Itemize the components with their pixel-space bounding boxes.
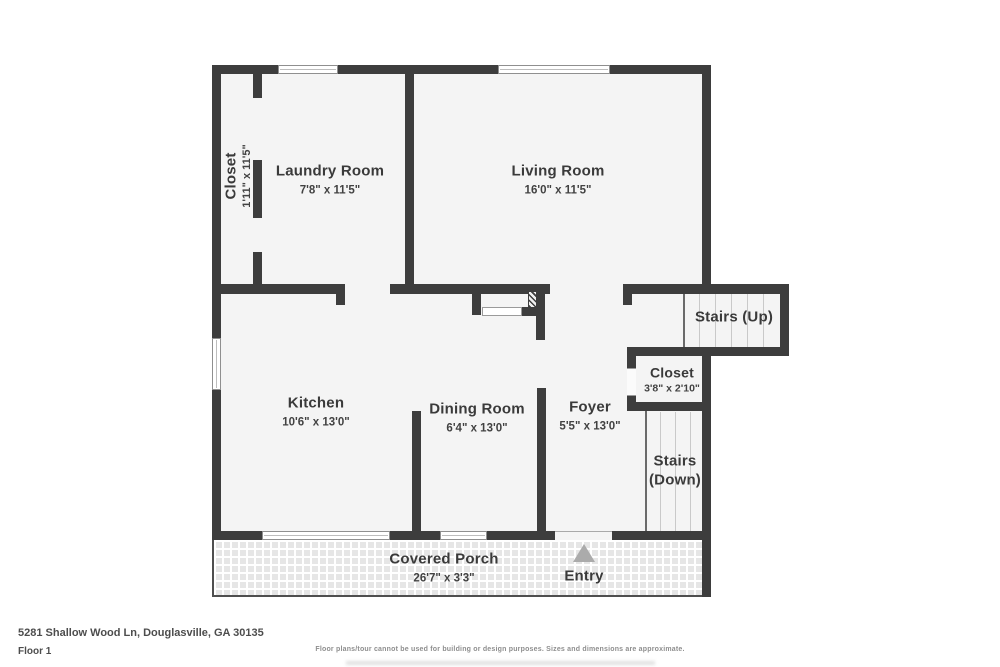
room-dims: 7'8" x 11'5": [276, 183, 384, 197]
footer-artifact: [346, 661, 655, 665]
wall: [253, 65, 262, 98]
room-name: Foyer: [559, 398, 620, 417]
wall: [780, 284, 789, 354]
room-label-living: Living Room 16'0" x 11'5": [511, 162, 604, 197]
room-name: Stairs (Up): [695, 309, 773, 328]
stair-edge: [683, 294, 685, 347]
wall: [212, 284, 345, 294]
wall: [536, 284, 545, 340]
room-name: (Down): [649, 471, 701, 490]
wall: [702, 347, 711, 597]
room-name: Covered Porch: [389, 550, 498, 569]
wall: [623, 294, 632, 305]
window: [212, 338, 221, 390]
room-label-kitchen: Kitchen 10'6" x 13'0": [282, 394, 350, 429]
wall: [405, 65, 414, 294]
window: [498, 65, 610, 74]
wall: [623, 284, 789, 294]
room-name: Entry: [564, 568, 603, 587]
house-floor: [212, 65, 711, 540]
room-name: Closet: [644, 365, 700, 383]
wall: [627, 347, 789, 356]
room-dims: 16'0" x 11'5": [511, 183, 604, 197]
wall: [520, 307, 537, 316]
room-dims: 5'5" x 13'0": [559, 419, 620, 433]
door-opening: [627, 368, 636, 396]
disclaimer-text: Floor plans/tour cannot be used for buil…: [0, 646, 1000, 653]
sliding-door: [482, 307, 522, 316]
room-dims: 10'6" x 13'0": [282, 415, 350, 429]
room-label-porch: Covered Porch 26'7" x 3'3": [389, 550, 498, 585]
room-name: Laundry Room: [276, 162, 384, 181]
wall: [212, 65, 221, 540]
property-address: 5281 Shallow Wood Ln, Douglasville, GA 3…: [18, 627, 264, 639]
wall: [336, 284, 345, 305]
room-name: Dining Room: [429, 400, 525, 419]
entry-arrow-icon: [573, 544, 595, 562]
room-label-entry: Entry: [564, 568, 603, 587]
window: [278, 65, 338, 74]
wall: [253, 160, 262, 218]
window: [440, 531, 487, 540]
wall: [412, 411, 421, 531]
room-dims: 26'7" x 3'3": [389, 571, 498, 585]
room-label-laundry: Laundry Room 7'8" x 11'5": [276, 162, 384, 197]
floor-plan-page: Closet 1'11" x 11'5" Laundry Room 7'8" x…: [0, 0, 1000, 667]
room-dims: 3'8" x 2'10": [644, 382, 700, 395]
room-label-stairs-down: Stairs (Down): [649, 452, 701, 490]
room-dims-closet-left: 1'11" x 11'5": [241, 144, 253, 207]
wall: [627, 347, 636, 368]
room-name: Stairs: [649, 452, 701, 471]
window: [262, 531, 390, 540]
wall: [390, 284, 550, 294]
stair-edge: [645, 411, 647, 531]
wall: [702, 65, 711, 294]
room-label-closet-left: Closet: [223, 152, 240, 199]
room-label-closet-right: Closet 3'8" x 2'10": [644, 365, 700, 396]
room-name: Living Room: [511, 162, 604, 181]
entry-opening: [555, 531, 612, 540]
wall: [627, 402, 711, 411]
room-dims: 6'4" x 13'0": [429, 421, 525, 435]
wall: [472, 294, 481, 315]
room-label-foyer: Foyer 5'5" x 13'0": [559, 398, 620, 433]
room-label-dining: Dining Room 6'4" x 13'0": [429, 400, 525, 435]
room-label-stairs-up: Stairs (Up): [695, 309, 773, 328]
wall: [537, 388, 546, 531]
room-name: Kitchen: [282, 394, 350, 413]
